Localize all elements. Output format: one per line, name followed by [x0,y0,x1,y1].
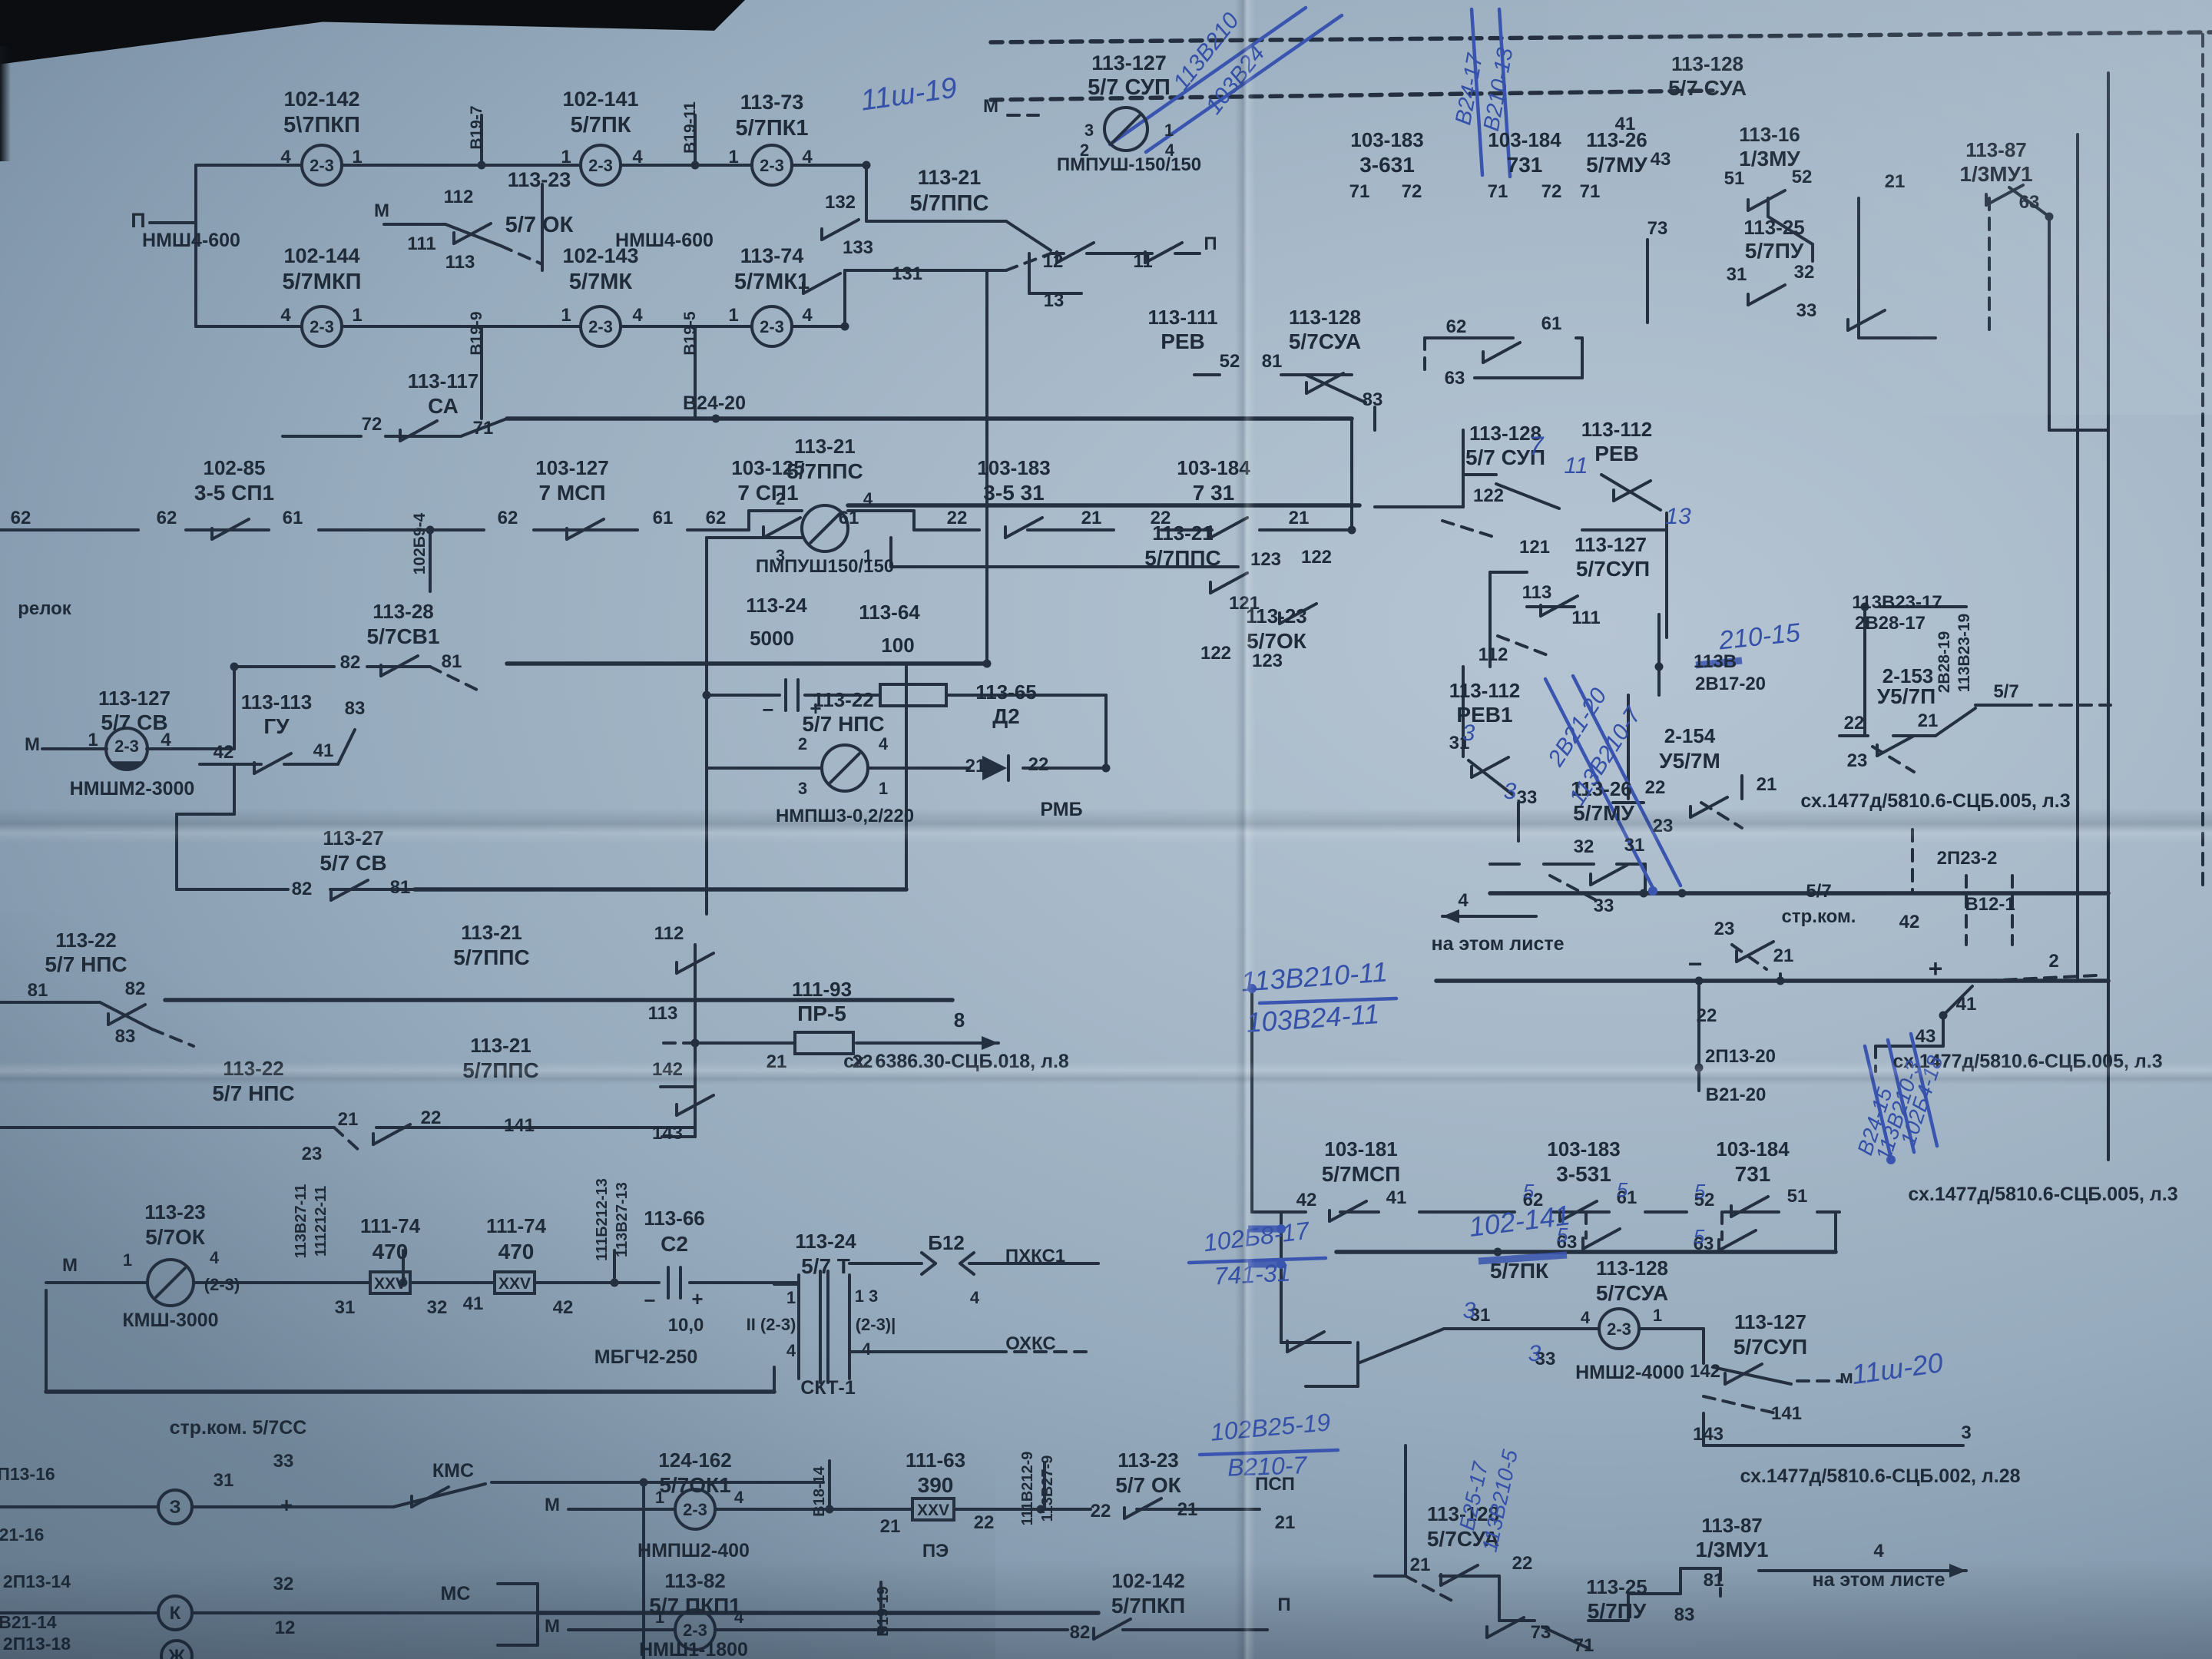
schematic-label: 5/7СУП [1576,557,1650,581]
handwritten-annotation: 5 [1694,1225,1705,1248]
schematic-label: 1/3МУ1 [1695,1538,1768,1561]
schematic-label: − [762,698,773,721]
schematic-label: 2 [798,734,807,753]
schematic-label: − [1688,950,1703,978]
schematic-label: НМПШ3-0,2/220 [776,806,914,826]
photo-paper: 2-32-32-32-32-32-32-32-32-3ЗКЖ2-3XXVXXVX… [0,0,2212,1659]
schematic-canvas: 2-32-32-32-32-32-32-32-32-3ЗКЖ2-3XXVXXVX… [0,0,2212,1659]
schematic-label: 1 [561,305,571,326]
contact-blade-icon [1005,518,1042,538]
schematic-label: 4 [1873,1541,1884,1561]
schematic-label: 470 [373,1240,409,1263]
schematic-label: 1 [352,305,362,326]
schematic-label: 141 [1771,1403,1802,1424]
schematic-label: 62 [11,508,31,528]
schematic-label: 5/7ПУ [1588,1599,1647,1623]
schematic-label: В19-19 [875,1586,892,1637]
sheet-reference-label: сх.1477д/5810.6-СЦБ.005, л.3 [1800,790,2070,812]
schematic-label: У5/7М [1659,749,1720,773]
junction-dot [1102,764,1111,773]
schematic-label: 23 [302,1144,323,1164]
schematic-label: 42 [1296,1190,1317,1210]
handwritten-annotation: 5 [1523,1180,1535,1203]
schematic-label: 102-85 [204,456,266,479]
schematic-label: 113-21 [470,1034,531,1057]
schematic-label: ПР-5 [797,1002,846,1025]
schematic-label: 113-73 [740,91,804,114]
schematic-label: 5/7 СВ [320,851,386,875]
schematic-label: 113-21 [1152,522,1214,545]
schematic-label: 2-154 [1664,724,1716,747]
schematic-label: 103-183 [1350,128,1423,151]
wire [152,1029,194,1046]
schematic-label: В21-20 [1706,1084,1767,1105]
handwritten-annotation: 5 [1617,1178,1628,1201]
arrow-head-icon [1442,909,1459,923]
schematic-label: 83 [115,1026,136,1047]
contact-blade-icon [1725,1364,1762,1384]
schematic-label: П [1204,233,1217,254]
schematic-label: 41 [1615,114,1636,134]
schematic-label: 5/7ППС [453,945,529,969]
schematic-label: 113-24 [795,1230,856,1253]
schematic-label: 42 [214,742,234,763]
schematic-label: СКТ-1 [800,1377,856,1399]
wire [1442,521,1496,538]
junction-dot [640,1479,648,1487]
sheet-reference-label: сх. 6386.30-СЦБ.018, л.8 [843,1051,1069,1072]
schematic-label: (2-3)| [856,1315,896,1334]
schematic-label: 5/7СУА [1596,1281,1668,1305]
schematic-label: 113-111 [1147,306,1217,329]
schematic-label: 5/7 [1993,681,2018,702]
schematic-label: 22 [1028,754,1049,775]
relay-coil-pins: 2-3 [310,317,334,336]
schematic-label: 63 [2019,192,2040,213]
schematic-label: 102-141 [562,88,638,111]
schematic-label: 3 [798,779,807,798]
resistor-box-label: XXV [917,1502,949,1519]
schematic-label: 61 [839,508,859,528]
schematic-label: 2П13-14 [3,1571,71,1591]
sheet-reference-label: сх.1477д/5810.6-СЦБ.005, л.3 [1908,1184,2177,1205]
schematic-label: 113-16 [1739,123,1800,146]
relay-coil-pins: 2-3 [683,1500,707,1519]
schematic-label: 113 [1522,582,1552,603]
schematic-label: 8 [954,1008,965,1031]
schematic-label: 5/7 ОК [1115,1473,1181,1497]
schematic-label: 4 [802,305,813,326]
contact-blade-icon [1483,343,1520,363]
schematic-label: 4 [970,1288,980,1307]
schematic-label: ОХКС [1005,1333,1055,1354]
schematic-label: 83 [1363,389,1383,410]
schematic-label: 5/7 СУА [1668,76,1747,100]
schematic-label: 12 [1043,251,1064,272]
schematic-label: 71 [1580,181,1601,202]
schematic-label: 2 [2048,951,2058,972]
schematic-label: 32 [1574,836,1594,857]
schematic-label: 5/7ПК [571,113,631,137]
schematic-label: 32 [1794,262,1815,283]
wire [960,1253,974,1263]
schematic-label: 5/7МК [569,270,632,294]
schematic-label: 113-23 [1118,1449,1179,1472]
handwritten-annotation: 102В25-19 [1209,1408,1331,1446]
schematic-label: 3-5 31 [983,481,1044,505]
schematic-label: релок [18,598,72,619]
schematic-label: 82 [340,652,361,673]
resistor-box-label: XXV [498,1275,531,1293]
schematic-label: 113-113 [241,690,313,714]
schematic-label: 21-16 [0,1525,44,1545]
schematic-label: 5/7МСП [1322,1162,1401,1186]
schematic-label: 111-74 [486,1214,547,1237]
schematic-label: 5/7 ОК [505,213,574,237]
schematic-label: 4 [161,730,171,750]
schematic-label: 111212-11 [313,1186,329,1257]
schematic-label: 51 [1724,168,1745,189]
schematic-label: 31 [1727,264,1747,285]
handwritten-annotation: 5 [1694,1180,1706,1203]
schematic-label: (2-3) [204,1275,240,1294]
schematic-label: 3-531 [1556,1162,1611,1186]
schematic-label: 4 [802,147,813,167]
schematic-label: 4 [863,489,873,508]
junction-dot [1678,889,1687,898]
schematic-label: 111-63 [906,1449,965,1472]
schematic-label: 5/7 Т [801,1254,850,1278]
schematic-label: 113-25 [1586,1575,1647,1598]
schematic-label: 2П13-18 [3,1634,71,1654]
schematic-label: РЕВ [1594,442,1639,465]
junction-dot [703,691,711,700]
arrow-head-icon [982,1036,998,1050]
schematic-label: 731 [1507,153,1543,177]
schematic-label: 71 [1488,181,1508,202]
schematic-label: 5/7МКП [282,270,361,294]
schematic-label: 5/7 НПС [45,952,127,976]
schematic-label: 42 [1899,912,1920,932]
schematic-label: 103-181 [1324,1137,1397,1161]
handwritten-annotation: 3 [1504,779,1517,804]
schematic-label: 113В27-11 [293,1184,310,1259]
schematic-label: 4 [280,305,291,326]
schematic-label: 41 [1386,1187,1407,1208]
schematic-label: 82 [292,879,313,899]
schematic-label: 81 [442,651,462,672]
schematic-label: 5/7МК1 [734,270,810,294]
contact-blade-icon [1583,1229,1620,1249]
schematic-label: НМШ4-600 [142,230,240,251]
wire [501,246,542,264]
schematic-label: 33 [1594,896,1614,916]
junction-dot [230,663,239,671]
schematic-label: 21 [1081,508,1102,528]
schematic-label: 124-162 [658,1449,731,1472]
schematic-label: 5/7ПКП [1111,1594,1185,1618]
schematic-label: М [25,734,40,755]
schematic-label: 22 [421,1108,442,1128]
schematic-label: 113-66 [644,1207,705,1230]
schematic-label: В18-14 [811,1465,828,1516]
junction-dot [863,161,871,170]
schematic-label: 61 [1541,313,1562,334]
schematic-label: 83 [1674,1604,1695,1625]
schematic-label: МБГЧ2-250 [594,1346,697,1368]
handwritten-annotation: 3 [1463,1298,1476,1323]
schematic-label: 43 [1916,1026,1936,1047]
schematic-label: 1 [728,147,738,167]
schematic-label: 21 [1275,1512,1296,1533]
schematic-label: 103-184 [1716,1137,1790,1161]
schematic-label: КМШ-3000 [122,1310,218,1331]
wire [1496,484,1559,508]
schematic-label: 1 [655,1608,664,1627]
schematic-label: 71 [1349,181,1370,202]
schematic-label: 22 [974,1512,995,1533]
junction-dot [983,660,992,668]
schematic-label: 113-28 [373,600,434,623]
handwritten-annotation: 11 [1564,453,1588,478]
schematic-label: 113-112 [1581,418,1653,441]
junction-dot [1348,526,1356,535]
schematic-label: 22 [947,508,968,528]
junction-dot [841,323,849,331]
wire [922,1253,935,1263]
handwritten-annotation: 3 [1462,720,1475,746]
schematic-label: 111-93 [792,978,852,1001]
junction-dot [712,415,720,423]
schematic-label: 113-23 [508,168,571,191]
schematic-label: 4 [1458,890,1469,911]
schematic-label: В19-11 [681,101,699,154]
schematic-label: 113 [648,1003,678,1024]
schematic-label: 33 [273,1451,294,1472]
schematic-label: 5000 [750,627,794,650]
schematic-label: 4 [862,1339,872,1359]
schematic-label: 23 [1847,750,1868,771]
schematic-label: 113-117 [408,369,479,392]
schematic-label: СА [428,394,459,418]
wire [1006,221,1051,250]
schematic-label: 113-22 [813,688,874,711]
contact-blade-icon [400,421,437,441]
schematic-label: 73 [1647,218,1668,239]
latched-relay-fill [110,761,143,770]
schematic-label: 102-142 [283,88,359,111]
schematic-label: 113-23 [144,1200,206,1224]
wire [1704,1396,1776,1413]
schematic-label: 42 [553,1297,574,1318]
schematic-label: 112 [444,187,474,207]
contact-blade-icon [1877,736,1914,756]
schematic-label: 113-128 [1596,1257,1668,1280]
schematic-label: 23 [1714,919,1735,939]
contact-blade-icon [412,1487,449,1507]
schematic-label: + [1929,955,1943,982]
schematic-label: − [644,1289,655,1312]
schematic-label: 2В28-17 [1855,613,1926,634]
schematic-label: 5/7СУА [1289,329,1361,353]
wire [1873,747,1914,772]
schematic-label: 21 [767,1051,787,1072]
junction-dot [691,1039,700,1048]
schematic-label: 121 [1519,537,1550,558]
handwritten-annotation: В210-7 [1227,1451,1308,1482]
schematic-label: НМШ1-1800 [639,1639,748,1659]
schematic-label: 113 [445,252,475,273]
schematic-label: 141 [504,1115,535,1136]
schematic-label: М [62,1255,78,1276]
schematic-label: 5/7 [1806,881,1831,902]
handwritten-annotation: 102Б8-17 [1202,1217,1312,1257]
schematic-label: 21 [1885,171,1906,192]
schematic-label: 122 [1200,643,1231,664]
schematic-label: 4 [632,147,643,167]
schematic-label: 5\7ПКП [283,113,360,137]
schematic-label: 22 [1091,1501,1111,1522]
handwritten-annotation: 11ш-19 [859,72,959,118]
schematic-label: 5/7ППС [1144,546,1220,570]
schematic-label: 1 [352,147,362,167]
contact-blade-icon [1719,1230,1756,1250]
schematic-label: 113-87 [1701,1514,1763,1537]
schematic-label: 4 [879,734,889,753]
schematic-label: 43 [1651,149,1671,170]
schematic-label: У5/7П [1877,684,1936,708]
schematic-label: В19-5 [681,311,699,356]
schematic-label: В12-1 [1965,894,2015,915]
junction-dot [1939,1012,1948,1020]
relay-coil-pins: 2-3 [683,1621,707,1640]
relay-coil-pins: 2-3 [1607,1320,1631,1339]
schematic-label: 5/7ППС [910,191,989,216]
schematic-label: 113-128 [1671,52,1743,75]
relay-coil-pins: 2-3 [310,156,334,175]
schematic-label: 113-112 [1449,679,1521,702]
motor-relay-slash [810,514,839,542]
schematic-label: 4 [280,147,291,167]
schematic-label: 100 [881,634,914,657]
schematic-label: 5/7ПК1 [736,116,809,141]
schematic-label: 32 [427,1297,448,1318]
schematic-label: 82 [125,979,146,999]
sheet-reference-label: на этом листе [1431,933,1564,955]
schematic-label: 33 [1796,300,1817,321]
schematic-label: + [280,1493,293,1517]
schematic-label: РМБ [1040,799,1082,820]
schematic-label: стр.ком. 5/7СС [170,1417,307,1439]
wire [334,1128,361,1152]
schematic-label: 113-21 [918,166,982,189]
schematic-label: 32 [273,1574,294,1594]
contact-blade-icon [1731,1197,1768,1217]
contact-blade-icon [1210,573,1247,593]
schematic-label: НМШ2-4000 [1575,1362,1684,1383]
schematic-label: 131 [892,263,922,284]
schematic-label: 5/7ППС [462,1058,538,1082]
schematic-label: 143 [1693,1424,1724,1445]
schematic-label: 111В212-9 [1019,1452,1036,1526]
diode-icon [982,756,1007,780]
schematic-label: 31 [1624,835,1645,856]
schematic-label: РЕВ [1161,329,1205,353]
schematic-label: ПМПУШ-150/150 [1057,154,1201,175]
schematic-label: 21 [1410,1555,1431,1575]
schematic-label: 51 [1787,1186,1808,1207]
schematic-label: ГУ [263,714,290,738]
schematic-label: 3 [1961,1422,1971,1443]
schematic-label: 111 [407,233,435,254]
schematic-label: ПЭ [922,1541,949,1561]
schematic-label: 113-127 [98,687,171,710]
junction-dot [1640,889,1648,898]
schematic-label: 2В17-20 [1695,674,1766,694]
schematic-label: 81 [390,877,411,898]
schematic-label: 31 [335,1297,356,1318]
schematic-label: 12 [275,1618,296,1638]
schematic-label: 82 [1070,1622,1091,1643]
schematic-label: 61 [653,508,674,528]
schematic-label: 5/7 СВ [101,710,167,734]
schematic-label: 103-184 [1177,456,1250,479]
schematic-label: 103-127 [535,456,608,479]
schematic-label: 1 [879,779,888,798]
schematic-label: 113В23-17 [1852,592,1942,613]
schematic-label: 102Б9-4 [411,512,429,575]
schematic-label: 2П23-2 [1937,848,1998,869]
schematic-label: 5/7ППС [786,459,863,483]
schematic-label: 122 [1473,485,1504,506]
wire [922,1263,935,1274]
junction-dot [1777,977,1785,985]
junction-dot [611,1279,619,1287]
schematic-label: 731 [1735,1162,1771,1186]
schematic-label: 102-142 [1111,1569,1184,1592]
schematic-label: 22 [1645,777,1666,798]
contact-blade-icon [1748,285,1785,305]
schematic-label: 71 [1574,1635,1594,1656]
schematic-label: В21-14 [0,1612,57,1632]
schematic-label: М [545,1495,560,1515]
schematic-label: 1 [786,1288,796,1307]
schematic-label: 41 [1956,994,1977,1015]
relay-coil-pins: 2-3 [588,156,613,175]
schematic-label: 113-87 [1965,138,2027,161]
relay-coil-pins: З [169,1497,180,1518]
motor-relay-slash [156,1268,184,1296]
schematic-label: 2 [776,489,785,508]
handwritten-annotation: 113В210-11 [1240,955,1389,997]
contact-blade-icon [1210,518,1247,538]
schematic-label: 21 [1918,710,1939,731]
wire [393,1484,485,1507]
schematic-label: + [691,1287,703,1310]
wire [338,730,355,764]
schematic-label: 5/7ОК [145,1225,206,1249]
schematic-label: 41 [313,740,334,761]
junction-dot [478,161,486,170]
schematic-label: 11 [1133,251,1152,272]
schematic-label: 1/3МУ1 [1959,162,2032,186]
junction-dot [1494,1248,1502,1257]
schematic-label: 7 31 [1193,481,1235,505]
relay-coil-pins: 2-3 [114,737,139,756]
schematic-label: 1 [655,1488,664,1507]
schematic-label: 5/7СУП [1734,1335,1807,1359]
schematic-label: 62 [157,508,177,528]
